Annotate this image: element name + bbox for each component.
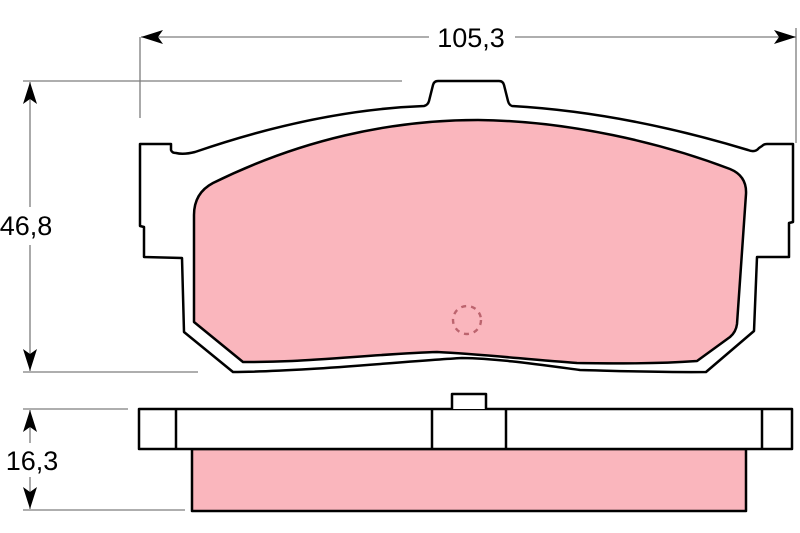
front-view [140, 81, 793, 372]
width-dimension-label: 105,3 [437, 23, 505, 53]
height-dimension-label: 46,8 [0, 211, 52, 241]
thickness-dimension-label: 16,3 [6, 446, 59, 476]
side-friction-layer [192, 449, 746, 511]
side-backplate [139, 409, 792, 449]
front-friction-pad [194, 120, 746, 363]
side-view [139, 394, 792, 511]
brake-pad-technical-drawing: 105,3 46,8 16,3 [0, 0, 800, 533]
side-backplate-lug [452, 394, 486, 409]
